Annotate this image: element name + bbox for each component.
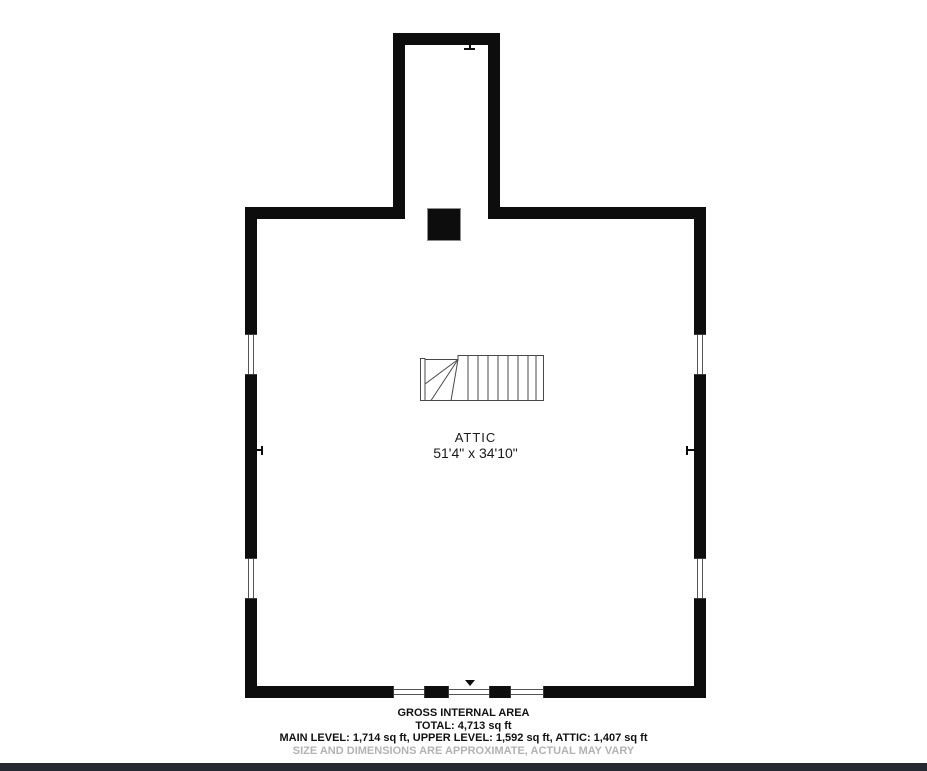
window-right-upper <box>694 334 706 375</box>
wall-extension-left <box>393 33 405 219</box>
wall-extension-top <box>393 33 500 45</box>
wall-top-left-segment <box>245 207 393 219</box>
bottom-bar <box>0 763 927 771</box>
window-pane <box>449 689 489 695</box>
gross-internal-area-title: GROSS INTERNAL AREA <box>0 707 927 720</box>
size-disclaimer: SIZE AND DIMENSIONS ARE APPROXIMATE, ACT… <box>0 745 927 758</box>
window-left-lower <box>245 558 257 599</box>
window-bottom-center <box>448 686 490 698</box>
chimney <box>427 208 461 241</box>
window-right-lower <box>694 558 706 599</box>
window-pane <box>697 559 703 598</box>
room-dimensions: 51'4" x 34'10" <box>245 445 706 461</box>
total-area: TOTAL: 4,713 sq ft <box>0 720 927 733</box>
staircase-icon <box>415 350 550 406</box>
window-pane <box>697 335 703 374</box>
window-pane <box>248 335 254 374</box>
window-pane <box>511 689 543 695</box>
area-summary: GROSS INTERNAL AREA TOTAL: 4,713 sq ft M… <box>0 707 927 757</box>
tick-marker-bottom <box>465 680 475 686</box>
room-label-block: ATTIC 51'4" x 34'10" <box>245 430 706 461</box>
level-areas: MAIN LEVEL: 1,714 sq ft, UPPER LEVEL: 1,… <box>0 732 927 745</box>
window-left-upper <box>245 334 257 375</box>
room-label: ATTIC <box>245 430 706 445</box>
floorplan-canvas: ATTIC 51'4" x 34'10" GROSS INTERNAL AREA… <box>0 0 927 771</box>
window-pane <box>248 559 254 598</box>
wall-extension-right <box>488 33 500 219</box>
window-bottom-right <box>510 686 544 698</box>
window-pane <box>394 689 424 695</box>
wall-top-right-segment <box>500 207 706 219</box>
window-bottom-left <box>393 686 425 698</box>
